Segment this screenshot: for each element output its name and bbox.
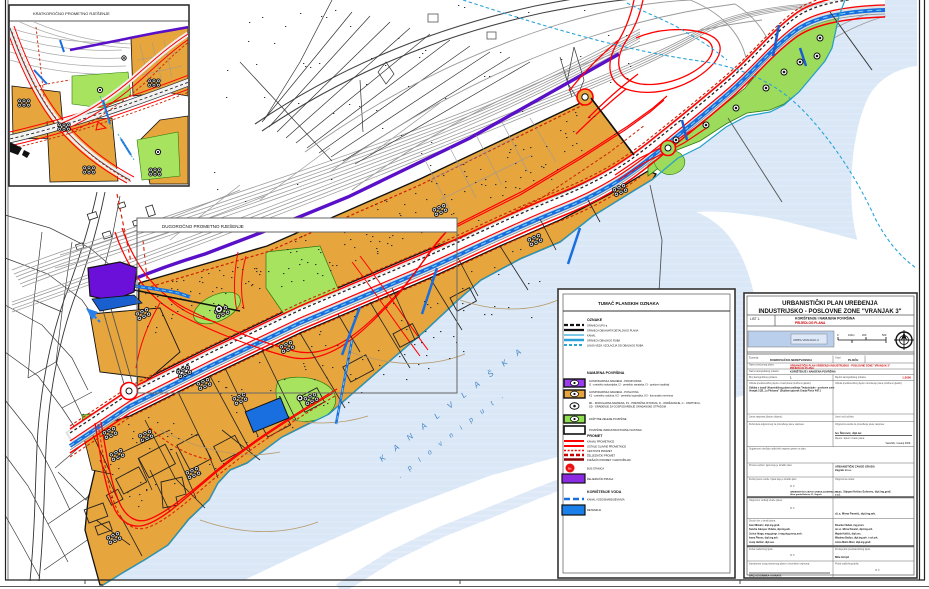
svg-text:M.P.: M.P. — [790, 506, 795, 510]
svg-text:I1 - pretežito industrijska, I: I1 - pretežito industrijska, I2 - pretež… — [589, 383, 670, 387]
svg-text:URBS-VRANJAK-3: URBS-VRANJAK-3 — [793, 338, 819, 342]
svg-text:OSTALE GLAVNE PROMETNICE: OSTALE GLAVNE PROMETNICE — [587, 445, 626, 449]
svg-text:NAMJENA POVRŠINA: NAMJENA POVRŠINA — [587, 370, 625, 375]
svg-text:Predsjednik predstavničkog tij: Predsjednik predstavničkog tijela: — [835, 548, 871, 551]
svg-text:Biserka Vlahek, ing.prom.: Biserka Vlahek, ing.prom. — [835, 524, 865, 527]
svg-text:BROJ IZVORNIKA I KARATA:: BROJ IZVORNIKA I KARATA: — [749, 575, 782, 578]
svg-text:GRANICA UPU-a: GRANICA UPU-a — [587, 324, 608, 328]
svg-text:mr.sc. Mirna Pavetić, dipl.ing: mr.sc. Mirna Pavetić, dipl.ing.arh. — [835, 528, 873, 531]
svg-text:Ivan Mlinarić, dipl.ing.građ.: Ivan Mlinarić, dipl.ing.građ. — [749, 524, 780, 527]
svg-text:GOSPODARSKA NAMJENA - PROIZVOD: GOSPODARSKA NAMJENA - PROIZVODNA — [589, 379, 642, 383]
svg-text:KRATKOROČNO PROMETNO RJEŠENJE: KRATKOROČNO PROMETNO RJEŠENJE — [33, 11, 110, 16]
svg-text:KANALI PROMETNICE: KANALI PROMETNICE — [587, 440, 615, 444]
svg-text:Stručni tim u izradi plana:: Stručni tim u izradi plana: — [749, 520, 776, 523]
svg-text:Istovjetnost ovog prostornog p: Istovjetnost ovog prostornog plana s izv… — [749, 563, 810, 566]
svg-text:URBANISTIČKI PLAN UREĐENJA: URBANISTIČKI PLAN UREĐENJA — [782, 300, 878, 307]
svg-text:Broj kartografskog prikaza:: Broj kartografskog prikaza: — [749, 376, 778, 379]
svg-text:Jurica Hraga, mag.geogr. i mag: Jurica Hraga, mag.geogr. i mag.ing.prosp… — [749, 532, 803, 535]
svg-text:Mladena Bađun, dipl.ing.arh. i: Mladena Bađun, dipl.ing.arh. i ovl.arh. — [835, 537, 878, 540]
svg-text:Županija:: Županija: — [749, 357, 759, 360]
svg-text:Bs: Bs — [568, 467, 572, 471]
svg-text:GRANICA OBALNOG RUBA: GRANICA OBALNOG RUBA — [587, 339, 620, 343]
svg-text:RETENZIJA: RETENZIJA — [587, 508, 601, 512]
svg-text:Mjesto i datum izrade plana:: Mjesto i datum izrade plana: — [835, 437, 865, 440]
svg-text:Odgovorna osoba za provođenje: Odgovorna osoba za provođenje javne rasp… — [835, 423, 885, 426]
svg-text:GRANICA OBUHVATA DETALJNOG PLA: GRANICA OBUHVATA DETALJNOG PLANA — [587, 329, 639, 333]
svg-text:v.r.d.: v.r.d. — [835, 493, 841, 496]
svg-text:Varaždin, travanj 2009.: Varaždin, travanj 2009. — [885, 442, 911, 445]
svg-text:Odgovorna osoba:: Odgovorna osoba: — [835, 478, 855, 481]
svg-text:Vranjak 3 [EL.] u Pločama" (Sl: Vranjak 3 [EL.] u Pločama" (Službeni gla… — [749, 390, 821, 393]
svg-text:Pečat nadležnog tijela:: Pečat nadležnog tijela: — [749, 548, 773, 551]
svg-text:OZNAKE: OZNAKE — [587, 318, 603, 322]
svg-text:d.i.a. Mirna Pavetić, dipl.ing: d.i.a. Mirna Pavetić, dipl.ing.arh. — [835, 512, 876, 516]
svg-text:Pravna osoba / tijelo koje je: Pravna osoba / tijelo koje je izradilo p… — [749, 464, 793, 467]
svg-text:1.: 1. — [790, 376, 792, 380]
svg-text:K1 - pretežito uslužna, K2 - p: K1 - pretežito uslužna, K2 - pretežito t… — [589, 394, 673, 398]
svg-text:500: 500 — [882, 333, 887, 337]
svg-text:200: 200 — [862, 333, 867, 337]
svg-text:Josip Hulišić, dipl.oec.: Josip Hulišić, dipl.oec. — [749, 541, 775, 544]
svg-text:DUBROVAČKO-NERETVANSKA: DUBROVAČKO-NERETVANSKA — [770, 357, 812, 362]
svg-text:Mile Hrnjić: Mile Hrnjić — [835, 555, 850, 559]
svg-text:M.P.: M.P. — [790, 553, 795, 557]
svg-text:Naziv prostornog plana:: Naziv prostornog plana: — [749, 364, 775, 367]
svg-text:Zagreb d.o.o.: Zagreb d.o.o. — [835, 468, 852, 472]
svg-text:Javna rasprava (datum objave):: Javna rasprava (datum objave): — [749, 416, 783, 419]
svg-text:1:2000: 1:2000 — [902, 376, 911, 380]
svg-text:Grad:: Grad: — [835, 357, 841, 360]
svg-text:KORIŠTENJE VODA: KORIŠTENJE VODA — [587, 489, 622, 494]
svg-text:Odgovorni voditelj izrade plan: Odgovorni voditelj izrade plana: — [749, 499, 783, 502]
svg-text:Odluka predstavničkog tijela o: Odluka predstavničkog tijela o donošenju… — [835, 382, 903, 385]
svg-text:M.P.: M.P. — [875, 568, 880, 572]
svg-text:Sandra Jakopec Viduka, dipl.in: Sandra Jakopec Viduka, dipl.ing.arh. — [749, 528, 791, 531]
svg-text:KORIŠTENJE I NAMJENA POVRŠINA: KORIŠTENJE I NAMJENA POVRŠINA — [795, 316, 855, 321]
svg-text:Javni uvid održan:: Javni uvid održan: — [835, 416, 855, 419]
svg-text:Ulica grada Đakova 11, Zagreb: Ulica grada Đakova 11, Zagreb — [790, 494, 822, 496]
svg-text:PROMET: PROMET — [587, 434, 603, 438]
svg-text:DUGOROČNO PROMETNO RJEŠENJE: DUGOROČNO PROMETNO RJEŠENJE — [162, 223, 244, 229]
svg-text:KANAL VODOSNABDIJEVANJA: KANAL VODOSNABDIJEVANJA — [587, 498, 625, 502]
svg-text:100m: 100m — [848, 333, 855, 337]
svg-text:Odluka predstavničkog tijela o: Odluka predstavničkog tijela o izradi pl… — [749, 382, 812, 385]
svg-text:Mjerilo kartografskog prikaza:: Mjerilo kartografskog prikaza: — [835, 376, 867, 379]
svg-text:LIST 1.: LIST 1. — [750, 317, 760, 321]
svg-text:Ivana Plavec, dipl.ing.arh.: Ivana Plavec, dipl.ing.arh. — [749, 537, 779, 540]
svg-text:BUS STANICA: BUS STANICA — [587, 467, 604, 471]
svg-text:INDUSTRIJSKO - POSLOVNE ZONE ": INDUSTRIJSKO - POSLOVNE ZONE "VRANJAK 3" — [758, 309, 901, 315]
svg-text:M.P.: M.P. — [790, 484, 795, 488]
svg-text:Pečat pravne osobe / tijela ko: Pečat pravne osobe / tijela koje je izra… — [749, 478, 797, 481]
svg-text:Naziv kartografskog prikaza:: Naziv kartografskog prikaza: — [749, 370, 779, 373]
svg-text:KANAL: KANAL — [587, 334, 596, 338]
svg-text:Pečat tijela odgovornog za pro: Pečat tijela odgovornog za provođenje ja… — [749, 423, 805, 426]
svg-text:LINIJA VEZA I IZOLACIJA OD OBA: LINIJA VEZA I IZOLACIJA OD OBALNOG RUBA — [587, 344, 643, 348]
svg-text:Pečat nadležnog tijela:: Pečat nadležnog tijela: — [835, 563, 859, 566]
svg-text:Suglasnost utvrđuje nadležnih: Suglasnost utvrđuje nadležnih organa upr… — [749, 448, 806, 451]
svg-text:SD - GRAĐENJE ZA GOSPODARENJE: SD - GRAĐENJE ZA GOSPODARENJE GRAĐANSKE … — [589, 405, 666, 409]
svg-text:PLOČE: PLOČE — [848, 357, 858, 362]
svg-text:GOSPODARSKA NAMJENA - POSLOVNA: GOSPODARSKA NAMJENA - POSLOVNA — [589, 390, 639, 394]
svg-text:Anica Matić-Mioč, dipl.ing.gra: Anica Matić-Mioč, dipl.ing.građ. — [835, 541, 871, 544]
svg-text:PRIJEDLOG PLANA: PRIJEDLOG PLANA — [790, 367, 814, 370]
svg-text:TUMAČ PLANSKIH OZNAKA: TUMAČ PLANSKIH OZNAKA — [598, 300, 660, 306]
svg-text:mr.sc. Stjepan Kelčec-Suhovec,: mr.sc. Stjepan Kelčec-Suhovec, dipl.ing.… — [835, 490, 891, 494]
svg-text:Majda Hulišić, dipl.oec.: Majda Hulišić, dipl.oec. — [835, 532, 862, 535]
svg-text:PRIJEDLOG PLANA: PRIJEDLOG PLANA — [795, 321, 826, 325]
svg-text:Ivo Šimović, dipl.iur.: Ivo Šimović, dipl.iur. — [835, 430, 862, 435]
svg-text:CESTOVNI PROMET: CESTOVNI PROMET — [587, 449, 612, 453]
